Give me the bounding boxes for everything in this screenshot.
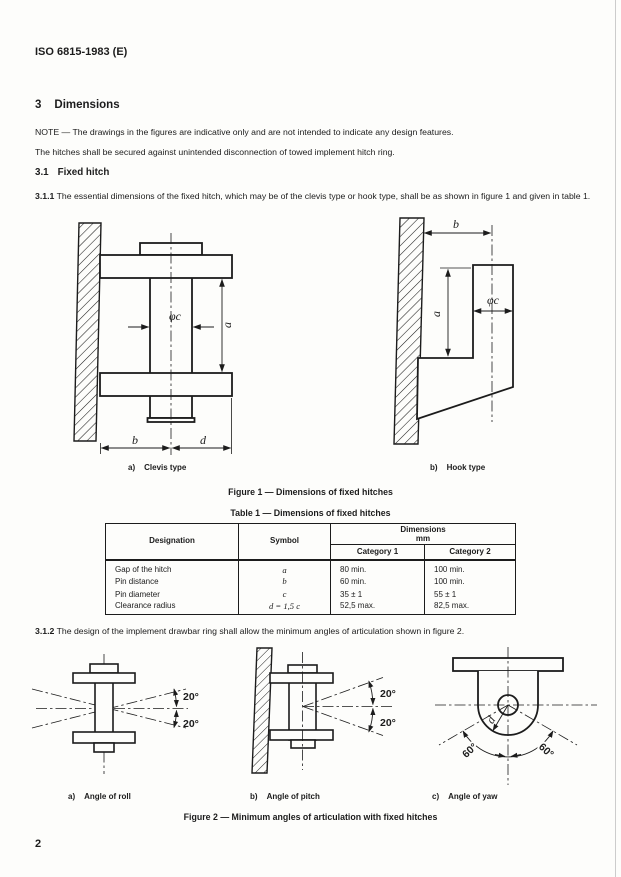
figure1a-text: Clevis type: [144, 463, 186, 472]
table1-fixed-hitch-dimensions: Designation Symbol Dimensions mm Categor…: [105, 523, 516, 615]
col-header-symbol: Symbol: [239, 524, 331, 560]
paragraph-3-1-1: 3.1.1 The essential dimensions of the fi…: [35, 190, 613, 203]
section-3-1-title: Fixed hitch: [58, 167, 110, 178]
cell-cat2: 55 ± 1: [425, 588, 516, 601]
figure2b-label: b)Angle of pitch: [250, 792, 320, 801]
cell-designation: Pin distance: [106, 575, 239, 588]
figure2c-prefix: c): [432, 792, 439, 801]
table-row: Pin distance b 60 min. 100 min.: [106, 575, 516, 588]
figure2a-text: Angle of roll: [84, 792, 131, 801]
figure1b-text: Hook type: [447, 463, 486, 472]
dimensions-label: Dimensions: [331, 525, 515, 534]
pitch-angle-lower: 20°: [380, 717, 396, 729]
col-header-dimensions: Dimensions mm: [331, 524, 516, 545]
figure2b-prefix: b): [250, 792, 258, 801]
paragraph-3-1-1-text: The essential dimensions of the fixed hi…: [57, 191, 591, 201]
pitch-clevis-side: [270, 652, 333, 770]
figure2c-label: c)Angle of yaw: [432, 792, 497, 801]
figure2-yaw-drawing: d 60° 60°: [425, 643, 615, 791]
dim-label-d: d: [200, 433, 207, 447]
roll-angle-lower: 20°: [183, 718, 199, 730]
cell-cat1: 52,5 max.: [331, 601, 425, 615]
col-header-category1: Category 1: [331, 545, 425, 560]
dim-label-a: a: [429, 311, 443, 317]
roll-clevis-front: [73, 664, 135, 752]
cell-symbol: a: [239, 560, 331, 575]
page-number: 2: [35, 838, 41, 850]
paragraph-3-1-1-number: 3.1.1: [35, 191, 54, 201]
figure2-caption: Figure 2 — Minimum angles of articulatio…: [0, 812, 621, 822]
roll-angle-upper: 20°: [183, 691, 199, 703]
figure1a-prefix: a): [128, 463, 135, 472]
cell-cat2: 100 min.: [425, 575, 516, 588]
figure2-roll-drawing: 20° 20°: [28, 648, 233, 790]
scan-edge-line: [615, 0, 616, 877]
table1-caption: Table 1 — Dimensions of fixed hitches: [0, 508, 621, 518]
figure1-hook-drawing: b a φc: [360, 212, 605, 462]
paragraph-securing: The hitches shall be secured against uni…: [35, 146, 613, 159]
col-header-designation: Designation: [106, 524, 239, 560]
figure1b-prefix: b): [430, 463, 438, 472]
pitch-angle-upper: 20°: [380, 688, 396, 700]
cell-cat1: 80 min.: [331, 560, 425, 575]
paragraph-3-1-2: 3.1.2 The design of the implement drawba…: [35, 625, 613, 638]
figure1b-label: b)Hook type: [430, 463, 485, 472]
section-3-1-heading: 3.1Fixed hitch: [35, 167, 109, 178]
document-number: ISO 6815-1983 (E): [35, 46, 127, 58]
figure2a-label: a)Angle of roll: [68, 792, 131, 801]
dim-label-phi-c: φc: [487, 293, 500, 307]
yaw-angle-left: 60°: [460, 741, 480, 761]
figure2c-text: Angle of yaw: [448, 792, 497, 801]
figure1a-label: a)Clevis type: [128, 463, 186, 472]
clevis-body: [100, 233, 232, 455]
col-header-category2: Category 2: [425, 545, 516, 560]
note-text: NOTE — The drawings in the figures are i…: [35, 126, 613, 139]
clevis-wall: [74, 223, 101, 441]
section-3-number: 3: [35, 99, 41, 111]
table-row: Gap of the hitch a 80 min. 100 min.: [106, 560, 516, 575]
pitch-angle-dimension: 20° 20°: [303, 678, 396, 736]
figure1-clevis-drawing: a φc b d: [55, 215, 305, 460]
section-3-heading: 3Dimensions: [35, 99, 120, 111]
figure2b-text: Angle of pitch: [267, 792, 320, 801]
iso-standard-page: ISO 6815-1983 (E) 3Dimensions NOTE — The…: [0, 0, 621, 877]
paragraph-3-1-2-text: The design of the implement drawbar ring…: [57, 626, 465, 636]
cell-cat1: 35 ± 1: [331, 588, 425, 601]
cell-symbol: b: [239, 575, 331, 588]
cell-cat1: 60 min.: [331, 575, 425, 588]
cell-symbol: c: [239, 588, 331, 601]
dim-label-b: b: [132, 433, 138, 447]
roll-angle-dimension: 20° 20°: [174, 689, 199, 730]
hook-body: [417, 225, 513, 422]
cell-designation: Gap of the hitch: [106, 560, 239, 575]
upper-jaw: [100, 255, 232, 278]
cell-designation: Clearance radius: [106, 601, 239, 615]
section-3-title: Dimensions: [54, 99, 119, 111]
lower-jaw: [100, 373, 232, 396]
cell-cat2: 82,5 max.: [425, 601, 516, 615]
paragraph-3-1-2-number: 3.1.2: [35, 626, 54, 636]
figure1-caption: Figure 1 — Dimensions of fixed hitches: [0, 487, 621, 497]
figure2a-prefix: a): [68, 792, 75, 801]
dim-label-b: b: [453, 217, 459, 231]
cell-designation: Pin diameter: [106, 588, 239, 601]
section-3-1-number: 3.1: [35, 167, 49, 178]
table-row: Pin diameter c 35 ± 1 55 ± 1: [106, 588, 516, 601]
yaw-angle-right: 60°: [536, 741, 556, 761]
unit-label: mm: [331, 534, 515, 543]
dim-label-a: a: [220, 322, 234, 328]
cell-cat2: 100 min.: [425, 560, 516, 575]
pitch-wall: [252, 648, 272, 773]
dim-label-phi-c: φc: [169, 309, 182, 323]
cell-symbol: d = 1,5 c: [239, 601, 331, 615]
figure2-pitch-drawing: 20° 20°: [233, 642, 423, 792]
table-row: Clearance radius d = 1,5 c 52,5 max. 82,…: [106, 601, 516, 615]
